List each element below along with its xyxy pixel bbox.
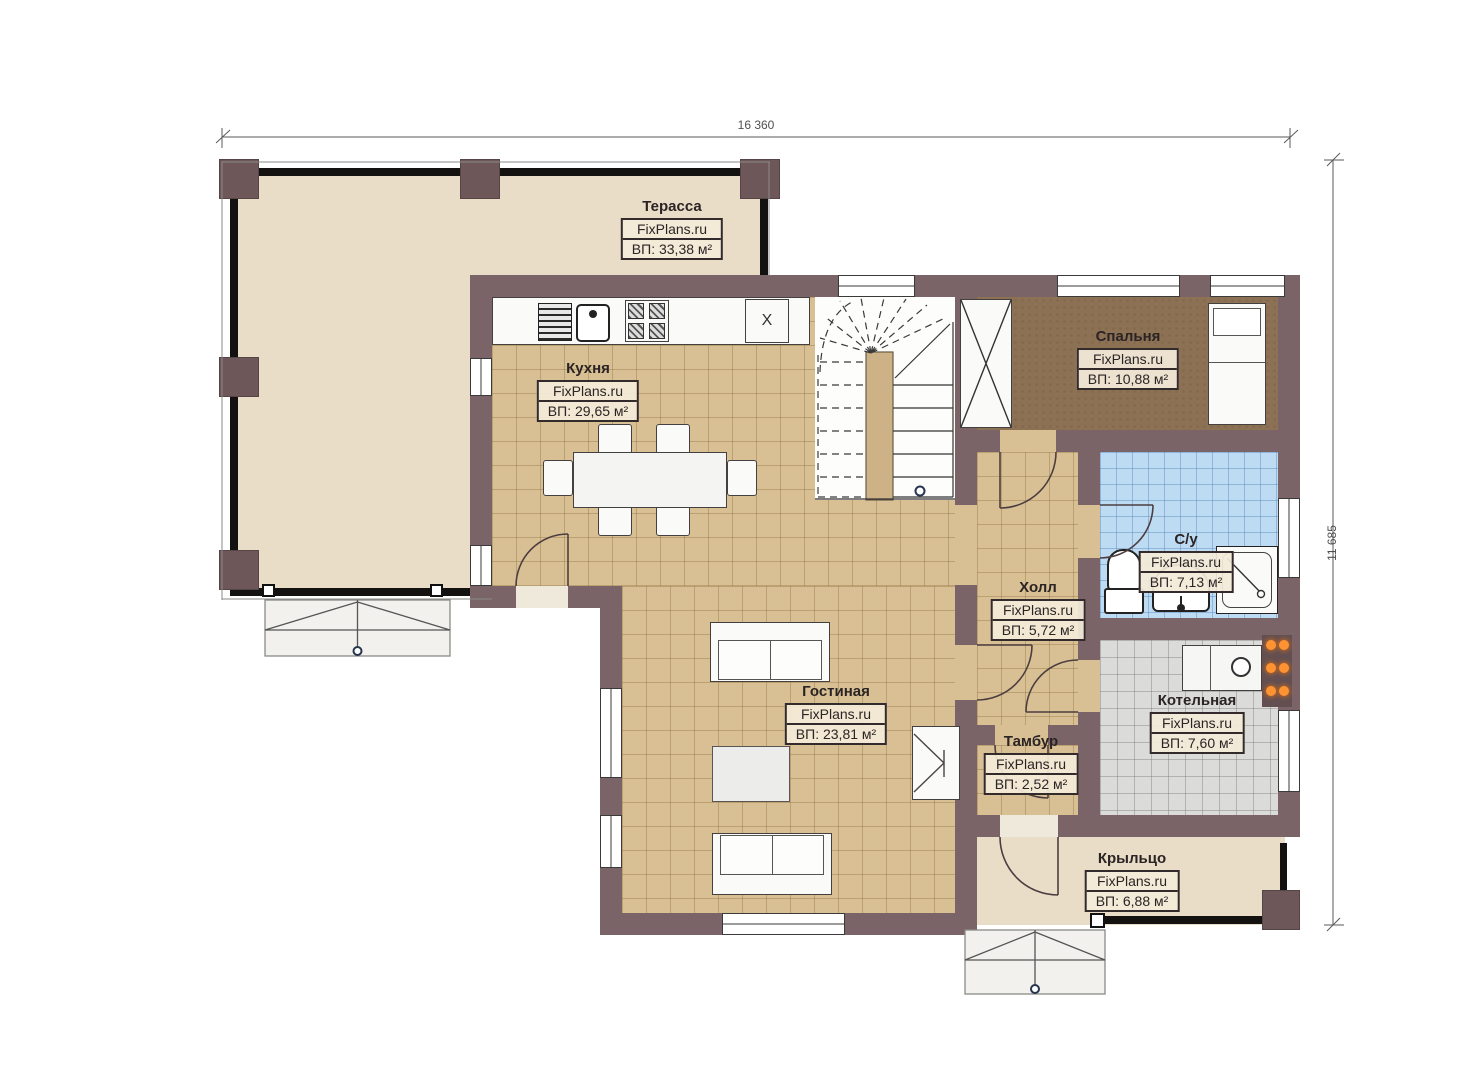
burner-icon [649,303,665,319]
label-box: FixPlans.ru ВП: 7,60 м² [1150,712,1245,754]
porch-steps [965,930,1105,994]
staircase-area [815,297,955,500]
room-brand: FixPlans.ru [1079,350,1177,370]
burner-icon [649,323,665,339]
label-box: FixPlans.ru ВП: 23,81 м² [785,703,887,745]
manifold-valve-icon [1279,686,1289,696]
window [722,913,845,935]
room-brand: FixPlans.ru [986,755,1077,775]
fireplace [912,726,960,800]
bed-pillow [1213,308,1261,336]
label-box: FixPlans.ru ВП: 33,38 м² [621,218,723,260]
window [838,275,915,297]
toilet [1107,549,1141,593]
room-name: Спальня [1077,328,1179,345]
room-brand: FixPlans.ru [1141,553,1232,573]
dining-table [573,452,727,508]
manifold-valve-icon [1266,686,1276,696]
room-brand: FixPlans.ru [539,382,637,402]
cabinet-x-mark: X [762,312,773,330]
room-area: ВП: 5,72 м² [993,621,1084,639]
terrace-post [460,159,500,199]
room-name: Котельная [1150,692,1245,709]
terrace-post [740,159,780,199]
label-box: FixPlans.ru ВП: 10,88 м² [1077,348,1179,390]
chair [727,460,757,496]
label-box: FixPlans.ru ВП: 7,13 м² [1139,551,1234,593]
room-brand: FixPlans.ru [1152,714,1243,734]
coffee-table [712,746,790,802]
room-brand: FixPlans.ru [993,601,1084,621]
room-area: ВП: 6,88 м² [1087,892,1178,910]
burner-icon [628,303,644,319]
window [470,358,492,396]
room-label-living: Гостиная FixPlans.ru ВП: 23,81 м² [785,683,887,745]
room-area: ВП: 7,60 м² [1152,734,1243,752]
room-area: ВП: 10,88 м² [1079,370,1177,388]
terrace-column-marker [262,584,275,597]
room-label-terrace: Терасса FixPlans.ru ВП: 33,38 м² [621,198,723,260]
terrace-column-marker [430,584,443,597]
room-label-bedroom: Спальня FixPlans.ru ВП: 10,88 м² [1077,328,1179,390]
room-area: ВП: 2,52 м² [986,775,1077,793]
window [1210,275,1285,297]
window [1278,710,1300,792]
manifold-valve-icon [1266,640,1276,650]
room-label-vestibule: Тамбур FixPlans.ru ВП: 2,52 м² [984,733,1079,795]
sink-drainer [538,303,572,341]
wardrobe [960,299,1012,428]
room-name: С/у [1139,531,1234,548]
bed-divider [1209,362,1265,363]
chair [656,506,690,536]
room-brand: FixPlans.ru [623,220,721,240]
room-area: ВП: 29,65 м² [539,402,637,420]
room-area: ВП: 33,38 м² [623,240,721,258]
cabinet-x: X [745,299,789,343]
manifold-valve-icon [1279,663,1289,673]
room-name: Гостиная [785,683,887,700]
doorway-bathroom [1078,505,1100,558]
boiler-dial [1231,657,1251,677]
window [1278,498,1300,578]
chair [598,424,632,454]
chair [543,460,573,496]
terrace-steps [265,600,450,656]
label-box: FixPlans.ru ВП: 29,65 м² [537,380,639,422]
room-name: Тамбур [984,733,1079,750]
porch-threshold-marker [1090,913,1105,928]
room-area: ВП: 23,81 м² [787,725,885,743]
room-label-bathroom: С/у FixPlans.ru ВП: 7,13 м² [1139,531,1234,593]
room-label-porch: Крыльцо FixPlans.ru ВП: 6,88 м² [1085,850,1180,912]
porch-threshold [1105,916,1285,924]
doorway-bedroom [1000,430,1056,452]
manifold-valve-icon [1266,663,1276,673]
manifold-valve-icon [1279,640,1289,650]
window [600,688,622,778]
room-label-hall: Холл FixPlans.ru ВП: 5,72 м² [991,579,1086,641]
room-brand: FixPlans.ru [787,705,885,725]
room-name: Терасса [621,198,723,215]
terrace-post [219,159,259,199]
room-name: Кухня [537,360,639,377]
washbasin-faucet-dot [1177,604,1185,612]
doorway-boiler [1078,660,1100,712]
doorway-entrance [1000,815,1058,837]
chair [598,506,632,536]
porch-post [1262,890,1300,930]
sofa-seat-divider [770,640,771,680]
label-box: FixPlans.ru ВП: 5,72 м² [991,599,1086,641]
label-box: FixPlans.ru ВП: 2,52 м² [984,753,1079,795]
dimension-top-label: 16 360 [738,118,775,132]
room-brand: FixPlans.ru [1087,872,1178,892]
doorway-hall-living [955,645,977,700]
chair [656,424,690,454]
burner-icon [628,323,644,339]
sofa-seat-divider [772,835,773,875]
window [470,545,492,586]
faucet-icon [589,310,597,318]
room-label-boiler: Котельная FixPlans.ru ВП: 7,60 м² [1150,692,1245,754]
window [600,815,622,868]
window [1057,275,1180,297]
doorway-kitchen-terrace [516,586,568,608]
room-label-kitchen: Кухня FixPlans.ru ВП: 29,65 м² [537,360,639,422]
terrace-post [219,550,259,590]
room-area: ВП: 7,13 м² [1141,573,1232,591]
terrace-post [219,357,259,397]
label-box: FixPlans.ru ВП: 6,88 м² [1085,870,1180,912]
dimension-right-label: 11 685 [1325,513,1339,573]
room-name: Крыльцо [1085,850,1180,867]
terrace-floor [238,275,470,588]
room-name: Холл [991,579,1086,596]
wall-bath-boiler [1100,618,1278,640]
opening-stairs-hall [955,505,977,585]
boiler-divider [1210,645,1211,691]
floor-plan: X [0,0,1473,1080]
